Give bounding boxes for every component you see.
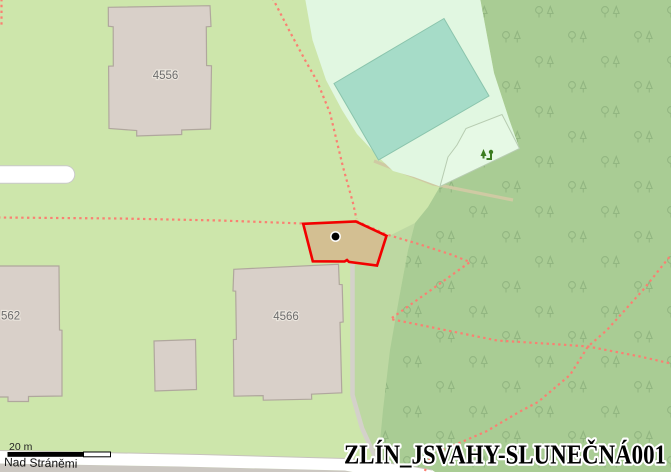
scale-bar-white-segment (84, 452, 111, 457)
parcel-marker-dot[interactable] (332, 233, 340, 241)
building-4566 (233, 264, 343, 400)
map-overlay-title: ZLÍN_JSVAHY-SLUNEČNÁ001 (344, 439, 666, 470)
map-canvas[interactable]: 4556 4566 562 Nad Stráněmi 20 m ZLÍN_JSV… (0, 0, 671, 472)
building-562-label: 562 (1, 311, 20, 323)
street-name-label: Nad Stráněmi (4, 455, 78, 471)
map-viewport[interactable]: 4556 4566 562 Nad Stráněmi 20 m ZLÍN_JSV… (0, 0, 671, 472)
building-small (154, 340, 197, 392)
building-562 (0, 266, 62, 402)
scale-bar-label: 20 m (9, 441, 33, 453)
building-4556-label: 4556 (153, 70, 179, 82)
building-4566-label: 4566 (273, 311, 299, 323)
scale-bar-black-segment (8, 452, 84, 457)
